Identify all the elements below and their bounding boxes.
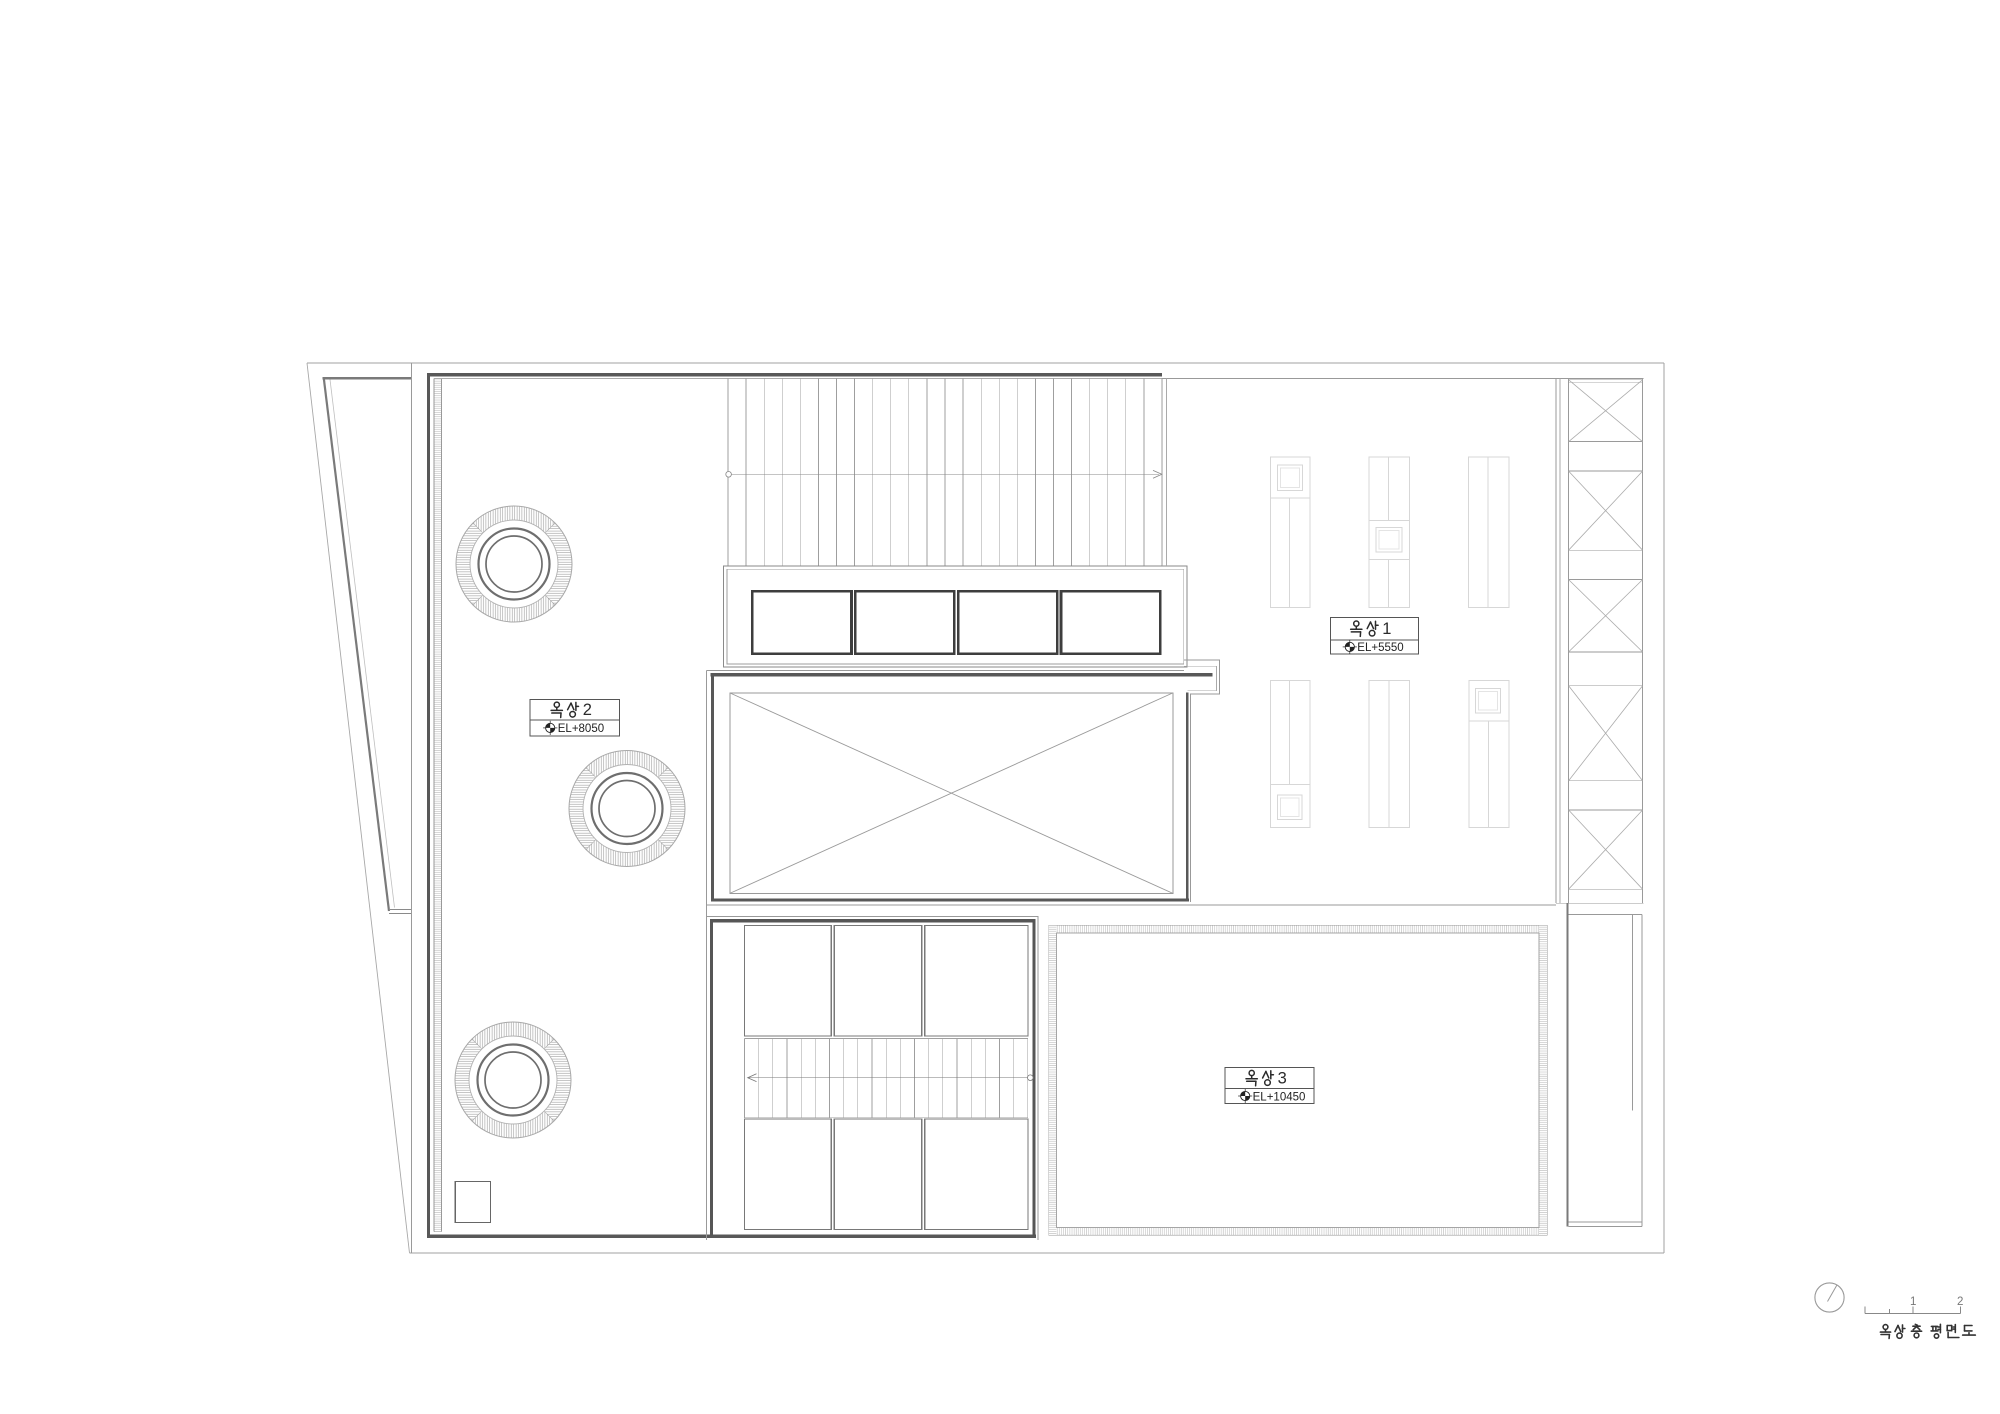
svg-text:EL+5550: EL+5550 — [1357, 642, 1403, 654]
svg-text:EL+10450: EL+10450 — [1253, 1091, 1306, 1103]
svg-text:3: 3 — [1278, 1070, 1287, 1088]
svg-text:1: 1 — [1382, 620, 1391, 638]
svg-text:2: 2 — [1957, 1296, 1963, 1308]
svg-text:1: 1 — [1910, 1296, 1916, 1308]
svg-text:EL+8050: EL+8050 — [558, 723, 604, 735]
svg-text:2: 2 — [583, 701, 592, 719]
